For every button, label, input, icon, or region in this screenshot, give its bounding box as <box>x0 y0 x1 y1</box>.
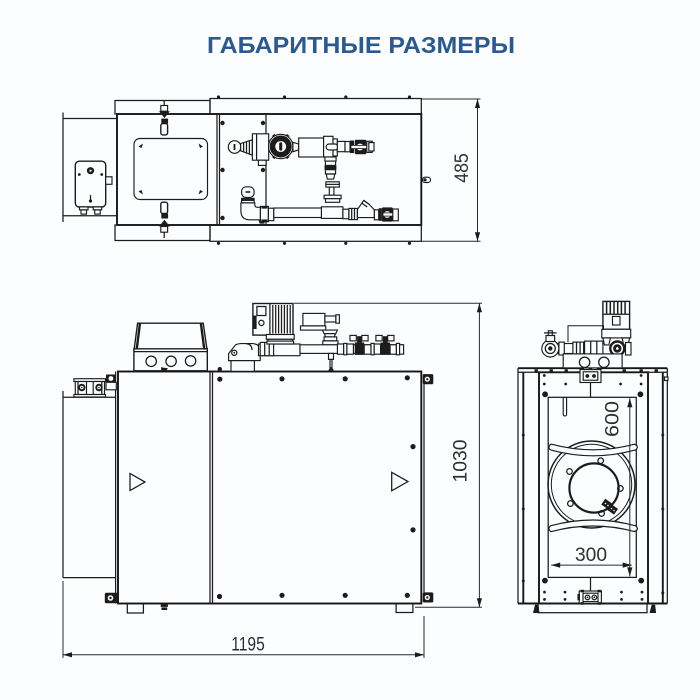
svg-text:300: 300 <box>575 545 607 566</box>
svg-text:1195: 1195 <box>231 635 265 656</box>
svg-text:485: 485 <box>452 153 473 183</box>
svg-text:600: 600 <box>603 401 624 437</box>
svg-text:1030: 1030 <box>451 440 472 483</box>
svg-text:ГАБАРИТНЫЕ РАЗМЕРЫ: ГАБАРИТНЫЕ РАЗМЕРЫ <box>207 32 515 58</box>
